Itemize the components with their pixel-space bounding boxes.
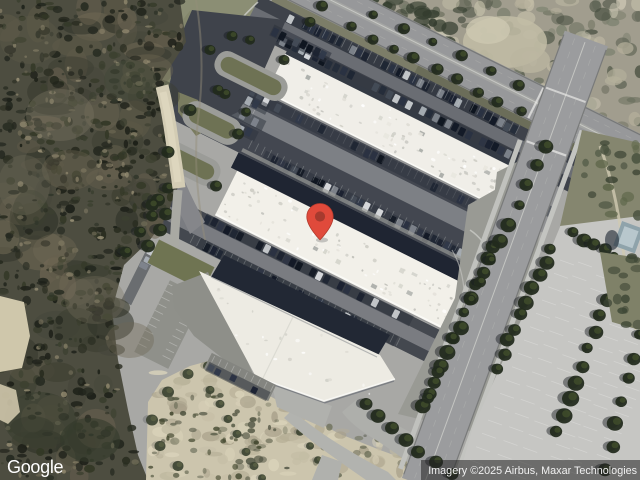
svg-text:Google: Google	[7, 457, 64, 477]
svg-text:Imagery ©2025 Airbus, Maxar Te: Imagery ©2025 Airbus, Maxar Technologies	[428, 465, 637, 477]
